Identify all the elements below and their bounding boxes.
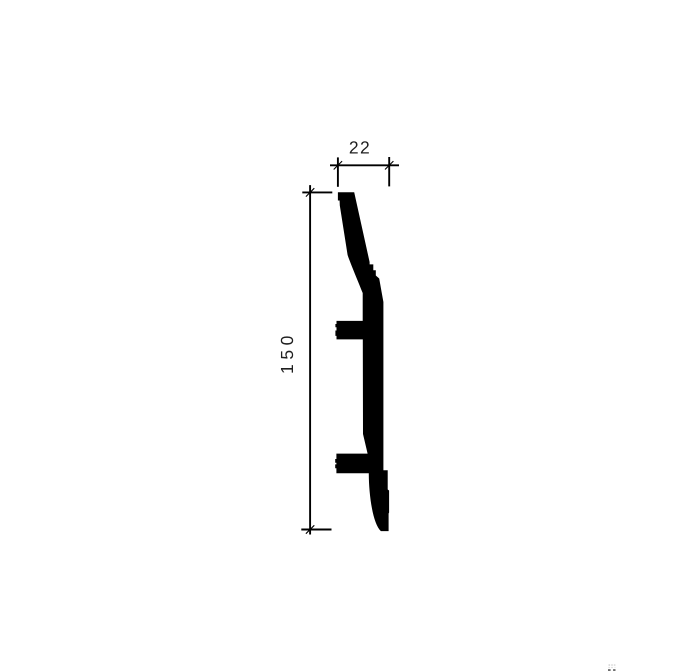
svg-text:22: 22	[349, 138, 371, 158]
svg-text:150: 150	[277, 331, 297, 374]
